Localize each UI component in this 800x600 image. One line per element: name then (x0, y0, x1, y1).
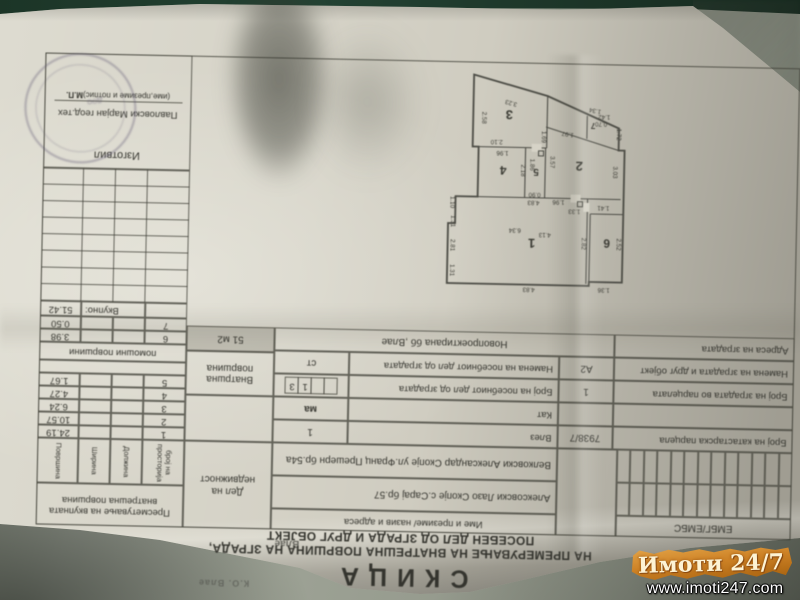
dim-label: 1.86 (528, 159, 535, 172)
embg-grid-cell (670, 484, 684, 517)
dim-label: 2.58 (480, 112, 487, 125)
dim-label: 4.83 (522, 286, 535, 293)
calc-col-width-label: Ширина (89, 447, 98, 475)
dim-label: 2.10 (490, 138, 503, 145)
room-number: 3 (506, 107, 514, 122)
calc-cell (112, 374, 144, 388)
embg-grid-cell (616, 483, 630, 516)
embg-grid-cell (751, 485, 765, 518)
calc-col-length: Должина (110, 439, 143, 485)
dim-label: 2.52 (614, 238, 621, 251)
calc-cell (79, 386, 111, 400)
calc-cell (80, 373, 112, 387)
dim-label: 0.90 (528, 191, 541, 198)
calc-cell (111, 400, 143, 414)
calc-col-area: Површина (37, 437, 79, 483)
paper-crease-horizontal (0, 305, 800, 351)
info-value: ст (274, 350, 349, 375)
embg-grid-cell (711, 452, 725, 485)
owner-row: Велковски Александар Скопје ул.Франц Пре… (272, 442, 558, 481)
stamp-text: доо (87, 96, 103, 108)
calc-col-area-label: Површина (53, 442, 62, 478)
dim-label: 1.31 (449, 215, 456, 228)
room-number: 1 (528, 236, 536, 251)
embg-grid-cell (629, 483, 643, 516)
dim-label: 1.72 (615, 128, 622, 141)
part-number-boxes: 1 3 (285, 377, 337, 395)
embg-grid-cell (778, 453, 792, 486)
embg-grid-cell (684, 451, 698, 484)
embg-label: ЕМБГ/ЕМБС (616, 516, 791, 541)
info-label: Намена на зградата и друг објект (614, 357, 794, 384)
calc-row-area: 10.57 (38, 411, 79, 425)
info-value: ма (273, 396, 348, 421)
calc-row-num: 1 (142, 427, 184, 441)
owner-row: Алексовски Лазо Скопје с.Сарај бр.57 (271, 475, 557, 514)
calc-cell (78, 425, 110, 439)
inner-area-label: Внатршна површина (185, 351, 274, 397)
ko-value: Влае (274, 537, 299, 549)
calc-col-width: Ширина (78, 438, 111, 484)
embg-grid-cell (724, 485, 738, 518)
calc-row-area: 6.24 (38, 398, 79, 412)
embg-grid-cell (777, 486, 791, 519)
digit-box (311, 377, 325, 394)
info-value: 1 (272, 419, 347, 444)
calc-row-num: 5 (144, 375, 186, 389)
calc-col-room-label: број на просторија (154, 441, 172, 484)
embg-grid-cell (765, 453, 779, 486)
calc-cell (111, 387, 143, 401)
dim-label: 2.18 (519, 164, 526, 177)
watermark-brand: Имоти 24/7 (638, 549, 785, 579)
embg-grid-cell (751, 452, 765, 485)
dim-label: 1.69 (540, 131, 547, 144)
part-of-property-label: Дел на недвижност (183, 441, 273, 530)
dim-label: 3.23 (504, 98, 518, 108)
embg-grid-cell (697, 451, 711, 484)
watermark: Имоти 24/7 www.imoti247.com (630, 548, 800, 598)
calc-row-num: 2 (143, 414, 185, 428)
embg-grid-cell (738, 452, 752, 485)
dim-label: 4.83 (527, 199, 540, 206)
info-label: Број на зградата во парцелата (613, 380, 793, 407)
embg-grid-cell (630, 450, 644, 483)
info-label (613, 403, 793, 430)
embg-grid-cell (617, 450, 631, 483)
calc-row-area: 1.67 (39, 372, 80, 386)
calc-col-length-label: Должина (121, 446, 130, 477)
calc-row-area: 24.19 (37, 424, 78, 438)
info-label: Кат (348, 398, 558, 425)
calc-cell (111, 413, 143, 427)
watermark-url: www.imoti247.com (630, 580, 800, 598)
calc-row-num: 4 (143, 388, 185, 402)
digit-box (324, 377, 338, 394)
info-value: 1 3 (273, 373, 348, 398)
embg-grid-cell (764, 486, 778, 519)
info-label: Влез (347, 421, 557, 448)
info-label: Намена на посебниот дел од зградата (349, 352, 559, 379)
calc-col-room: број на просторија (141, 440, 184, 486)
embg-grid-cell (644, 450, 658, 483)
embg-grid-cell (670, 451, 684, 484)
dim-label: 1.96 (496, 149, 509, 156)
ko-faint-note: К.О. Влае (198, 578, 249, 589)
info-label: Број на посебниот дел од зградата (348, 375, 558, 402)
dim-label: 6.34 (508, 226, 521, 233)
embg-grid (616, 450, 792, 520)
embg-grid-cell (643, 483, 657, 516)
dim-label: 1.31 (448, 264, 455, 277)
watermark-banner: Имоти 24/7 (630, 546, 793, 581)
camera-shadow-soft (300, 10, 450, 240)
empty-cell (184, 395, 273, 443)
embg-grid-cell (657, 450, 671, 483)
calc-row-num: 3 (143, 401, 185, 415)
calc-header: Пресметување на вкупната внатрешна површ… (36, 482, 184, 527)
info-label: Број на катастарска парцела (612, 426, 792, 453)
calc-cell (110, 426, 142, 440)
embg-grid-cell (724, 452, 738, 485)
dim-label: 2.81 (448, 239, 455, 252)
photo-scene: СКИЦА НА ПРЕМЕРУВАЊЕ НА ВНАТРЕШНА ПОВРШИ… (0, 0, 800, 600)
embg-grid-cell (683, 484, 697, 517)
dim-label: 3.03 (611, 166, 618, 179)
embg-grid-cell (656, 483, 670, 516)
digit-box: 3 (285, 377, 299, 394)
embg-grid-cell (737, 485, 751, 518)
digit-box: 1 (298, 377, 312, 394)
calc-row-area: 4.27 (38, 385, 79, 399)
calc-cell (79, 412, 111, 426)
calc-cell (79, 399, 111, 413)
room-number: 4 (499, 163, 506, 177)
embg-grid-cell (697, 484, 711, 517)
embg-grid-cell (710, 485, 724, 518)
